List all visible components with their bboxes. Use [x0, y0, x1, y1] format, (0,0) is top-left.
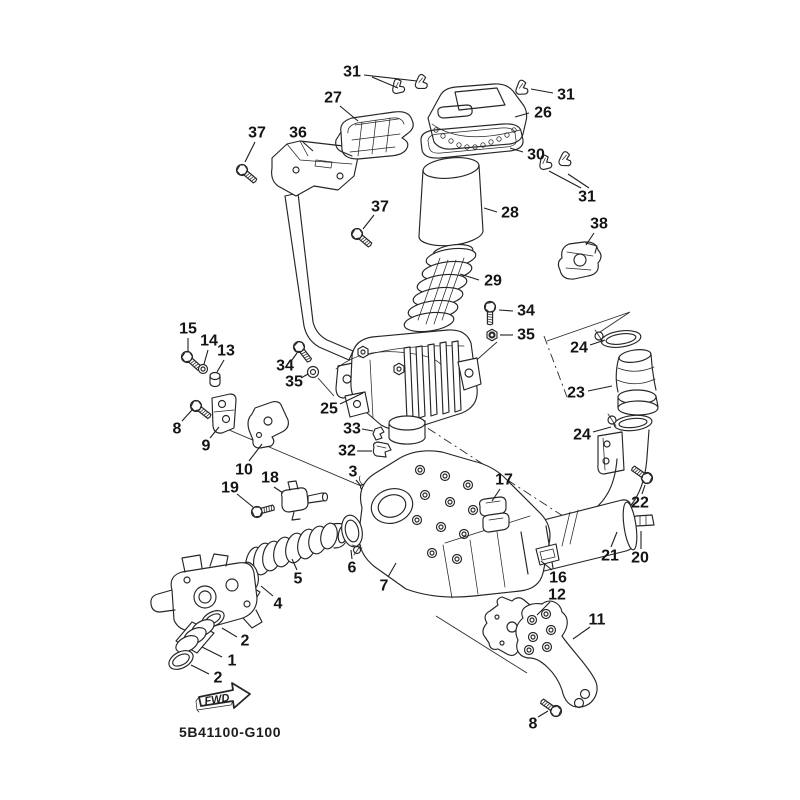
diagram-code: 5B41100-G100	[179, 724, 281, 740]
leader-line-23	[588, 386, 612, 391]
part-callout-30: 30	[527, 147, 545, 164]
leader-line-19	[237, 494, 253, 507]
leader-line-6	[351, 550, 352, 559]
bolt-8-bottom	[538, 696, 563, 718]
corrugated-duct-29	[403, 242, 477, 334]
leader-line-2	[191, 665, 209, 674]
part-callout-17: 17	[495, 472, 513, 489]
nut-35-left	[308, 367, 319, 378]
part-callout-9: 9	[202, 438, 211, 455]
part-callout-25: 25	[320, 401, 338, 418]
nut-35-right	[487, 329, 497, 341]
leader-line-37	[363, 215, 374, 229]
leader-line-28	[484, 208, 497, 212]
intake-shroud	[336, 112, 414, 159]
part-callout-34: 34	[276, 358, 294, 375]
bracket-9	[212, 394, 236, 433]
bracket-11	[516, 601, 597, 707]
part-callout-34: 34	[517, 303, 535, 320]
part-callout-38: 38	[590, 216, 608, 233]
leader-line-34	[499, 310, 513, 311]
clip-31	[516, 80, 529, 95]
part-callout-32: 32	[338, 443, 356, 460]
sensor-18	[282, 481, 328, 520]
part-callout-31: 31	[557, 87, 575, 104]
part-callout-35: 35	[285, 374, 303, 391]
leader-line-24	[593, 427, 611, 432]
leader-line-22	[642, 485, 645, 494]
leader-line-1	[202, 647, 222, 657]
bolt-8-left	[188, 398, 213, 421]
leader-line-18	[274, 487, 283, 493]
part-callout-24: 24	[570, 340, 588, 357]
part-callout-8: 8	[173, 421, 182, 438]
part-callout-23: 23	[567, 385, 585, 402]
leader-line-31	[531, 89, 553, 93]
part-callout-19: 19	[221, 480, 239, 497]
part-callout-4: 4	[274, 596, 283, 613]
leader-line-4	[261, 586, 273, 596]
leader-line-13	[217, 360, 224, 372]
bolt-34-right	[485, 302, 496, 325]
parts-diagram-page: FWD 5B41100-G100 31272631302837363731382…	[0, 0, 800, 800]
part-callout-10: 10	[235, 462, 253, 479]
part-callout-31: 31	[343, 64, 361, 81]
mount-17	[480, 497, 509, 532]
clip-33	[373, 427, 384, 440]
part-callout-28: 28	[501, 205, 519, 222]
part-callout-8: 8	[529, 716, 538, 733]
bolt-37-left	[234, 162, 259, 185]
part-callout-6: 6	[348, 560, 357, 577]
leader-line-14	[204, 350, 208, 364]
part-callout-31: 31	[578, 189, 596, 206]
bolt-34-left	[291, 339, 314, 364]
exploded-parts-diagram: FWD 5B41100-G100 31272631302837363731382…	[0, 0, 800, 800]
bolt-37-right	[349, 226, 374, 249]
part-callout-2: 2	[241, 633, 250, 650]
part-callout-3: 3	[349, 464, 358, 481]
gasket-2-lower	[166, 647, 196, 673]
part-callout-18: 18	[261, 470, 279, 487]
leader-line-31	[364, 75, 417, 81]
fwd-arrow: FWD	[196, 683, 250, 712]
part-callout-36: 36	[289, 125, 307, 142]
part-callout-11: 11	[589, 612, 606, 629]
air-filter-element	[419, 155, 483, 246]
holder-32	[373, 442, 391, 457]
clip-31	[558, 151, 572, 167]
part-callout-2: 2	[214, 670, 223, 687]
part-callout-7: 7	[380, 578, 389, 595]
part-callout-29: 29	[484, 273, 502, 290]
leader-line-2	[222, 628, 237, 637]
part-callout-15: 15	[179, 321, 197, 338]
part-callout-37: 37	[371, 199, 389, 216]
washer-14	[199, 365, 208, 374]
part-callout-14: 14	[200, 333, 218, 350]
plate-10	[248, 402, 288, 448]
part-callout-26: 26	[534, 105, 552, 122]
part-callout-37: 37	[248, 125, 266, 142]
part-callout-1: 1	[228, 653, 237, 670]
part-callout-16: 16	[549, 570, 567, 587]
part-callout-22: 22	[631, 495, 649, 512]
part-callout-5: 5	[294, 571, 303, 588]
part-callout-13: 13	[217, 343, 235, 360]
leader-line-11	[573, 627, 590, 639]
stay-bracket	[272, 141, 359, 360]
part-callout-24: 24	[573, 427, 591, 444]
bolt-22	[629, 463, 654, 485]
leader-line-8	[182, 410, 192, 421]
collar-13	[210, 373, 220, 387]
duct-clamp-38	[558, 242, 601, 279]
air-cleaner-cover	[428, 84, 527, 149]
part-callout-12: 12	[548, 587, 566, 604]
part-callout-20: 20	[631, 550, 649, 567]
part-callout-35: 35	[517, 327, 535, 344]
leader-line-8	[538, 711, 548, 717]
part-callout-21: 21	[601, 548, 619, 565]
part-callout-27: 27	[324, 90, 342, 107]
clip-31	[415, 74, 429, 90]
part-callout-33: 33	[343, 421, 361, 438]
leader-line-37	[245, 142, 255, 162]
leader-line-31	[568, 174, 589, 188]
screw-19	[250, 502, 275, 519]
leader-line-33	[362, 429, 373, 431]
leader-line-30	[510, 148, 523, 152]
